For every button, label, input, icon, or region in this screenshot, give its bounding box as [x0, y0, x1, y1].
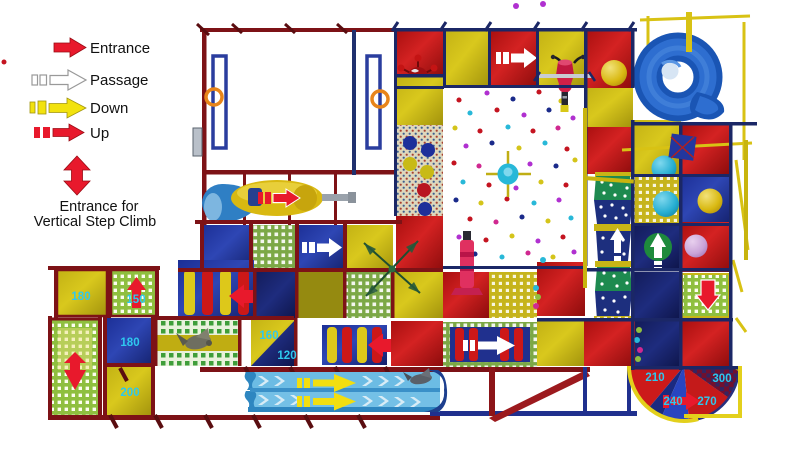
svg-text:Down: Down — [90, 100, 128, 117]
svg-text:270: 270 — [697, 396, 716, 408]
svg-text:200: 200 — [120, 387, 139, 399]
svg-text:Up: Up — [90, 125, 109, 142]
svg-text:Entrance for: Entrance for — [60, 199, 139, 215]
svg-text:240: 240 — [663, 396, 682, 408]
svg-text:160: 160 — [259, 330, 278, 342]
svg-text:120: 120 — [277, 350, 296, 362]
svg-text:180: 180 — [120, 337, 139, 349]
svg-text:210: 210 — [645, 372, 664, 384]
svg-text:Entrance: Entrance — [90, 40, 150, 57]
svg-text:Passage: Passage — [90, 72, 148, 89]
svg-text:150: 150 — [126, 294, 145, 306]
svg-text:180: 180 — [71, 291, 90, 303]
svg-text:300: 300 — [712, 373, 731, 385]
svg-text:Vertical Step Climb: Vertical Step Climb — [34, 214, 157, 230]
